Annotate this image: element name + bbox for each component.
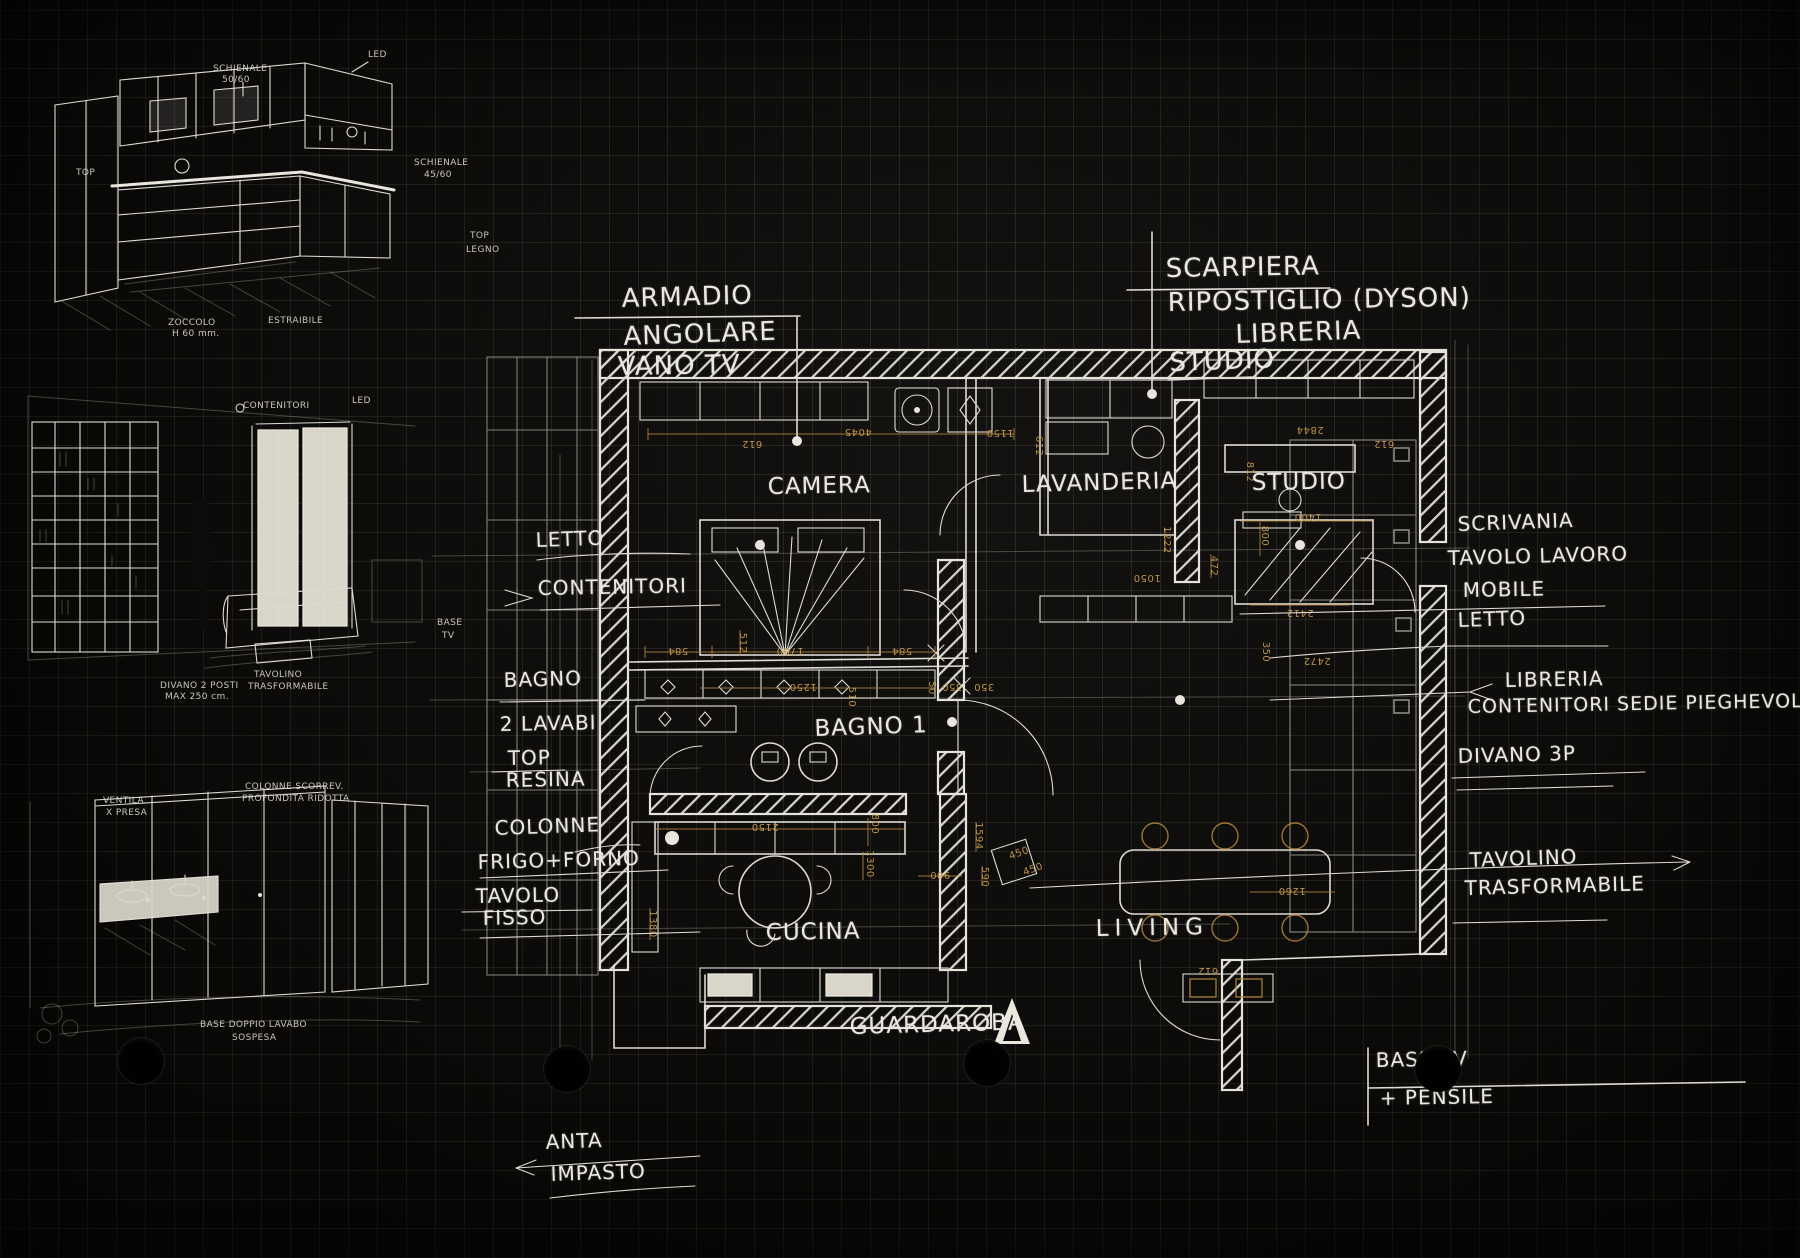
sketch-note-divano-b: MAX 250 cm. <box>165 692 229 702</box>
sketch-note-contenitori: CONTENITORI <box>243 401 310 411</box>
sketch-note-base-lavabo-a: BASE DOPPIO LAVABO <box>200 1020 307 1030</box>
note-anta: ANTA <box>545 1128 603 1154</box>
sketch-note-tv: TV <box>442 631 454 641</box>
note-2-lavabi: 2 LAVABI <box>500 710 597 736</box>
binder-hole <box>1415 1046 1461 1092</box>
note-colonne: COLONNE <box>494 812 600 840</box>
sketch-page: 612 4045 1150 612 2844 612 1400 800 2412… <box>0 0 1800 1258</box>
note-tavolo: TAVOLO <box>476 883 561 908</box>
sketch-note-led: LED <box>368 50 387 60</box>
room-label-living: LIVING <box>1096 914 1210 942</box>
note-mobile: MOBILE <box>1463 577 1546 602</box>
room-label-bagno1: BAGNO 1 <box>814 712 928 742</box>
note-top: TOP <box>508 745 551 770</box>
room-label-cucina: CUCINA <box>766 918 861 946</box>
sketch-note-base: BASE <box>437 618 462 628</box>
sketch-note-tavolino-a: TAVOLINO <box>254 670 302 680</box>
sketch-note-divano-a: DIVANO 2 POSTI <box>160 681 239 691</box>
sketch-note-schienale2-dim: 45/60 <box>424 170 452 180</box>
binder-hole <box>118 1038 164 1084</box>
note-trasformabile: TRASFORMABILE <box>1464 871 1645 900</box>
sketch-note-colonne-a: COLONNE SCORREV. <box>245 782 344 792</box>
callout-armadio-line3: VANO TV <box>617 350 740 382</box>
note-impasto: IMPASTO <box>550 1159 646 1186</box>
room-label-camera: CAMERA <box>768 472 871 500</box>
sketch-note-schienale-dim: 50/60 <box>222 75 250 85</box>
sketch-note-top-legno-b: LEGNO <box>466 245 500 255</box>
room-label-guardaroba: GUARDAROBA <box>849 1009 1025 1040</box>
sketch-note-top: TOP <box>76 168 95 178</box>
callout-armadio-line1: ARMADIO <box>621 281 753 314</box>
sketch-note-top-legno-a: TOP <box>470 231 489 241</box>
sketch-note-colonne-b: PROFONDITÀ RIDOTTA <box>242 794 350 804</box>
note-letto-right: LETTO <box>1457 606 1526 632</box>
callout-scarpiera-line2: RIPOSTIGLIO (DYSON) <box>1167 283 1471 318</box>
sketch-note-estraibile: ESTRAIBILE <box>268 316 323 326</box>
sketch-note-base-lavabo-b: SOSPESA <box>232 1033 276 1043</box>
binder-hole <box>964 1040 1010 1086</box>
sketch-note-zoccolo-dim: H 60 mm. <box>172 329 220 339</box>
note-resina: RESINA <box>506 767 586 792</box>
labels-layer: ARMADIO ANGOLARE VANO TV SCARPIERA RIPOS… <box>0 0 1800 1258</box>
note-tavolo-lavoro: TAVOLO LAVORO <box>1447 541 1628 570</box>
sketch-note-led-living: LED <box>352 396 371 406</box>
callout-scarpiera-line1: SCARPIERA <box>1165 251 1320 284</box>
note-bagno: BAGNO <box>503 666 582 692</box>
callout-scarpiera-line4: STUDIO <box>1169 344 1276 378</box>
note-letto: LETTO <box>535 526 604 552</box>
note-fisso: FISSO <box>483 905 547 930</box>
note-divano-3p: DIVANO 3P <box>1457 741 1576 768</box>
note-scrivania: SCRIVANIA <box>1457 508 1574 536</box>
note-tavolino: TAVOLINO <box>1469 844 1578 872</box>
sketch-note-ventola-a: VENTILA <box>103 796 144 806</box>
note-contenitori: CONTENITORI <box>538 573 688 600</box>
sketch-note-schienale2: SCHIENALE <box>414 158 468 168</box>
sketch-note-ventola-b: X PRESA <box>106 808 147 818</box>
note-libreria: LIBRERIA <box>1505 666 1604 692</box>
sketch-note-zoccolo: ZOCCOLO <box>168 318 215 328</box>
sketch-note-tavolino-b: TRASFORMABILE <box>248 682 328 692</box>
note-contenitori-sedie: CONTENITORI SEDIE PIEGHEVOLI <box>1468 690 1800 718</box>
note-frigo-forno: FRIGO+FORNO <box>477 846 640 874</box>
binder-hole <box>544 1046 590 1092</box>
callout-armadio-line2: ANGOLARE <box>623 317 777 352</box>
room-label-studio: STUDIO <box>1252 468 1347 496</box>
room-label-lavanderia: LAVANDERIA <box>1021 468 1177 498</box>
sketch-note-schienale: SCHIENALE <box>213 64 267 74</box>
